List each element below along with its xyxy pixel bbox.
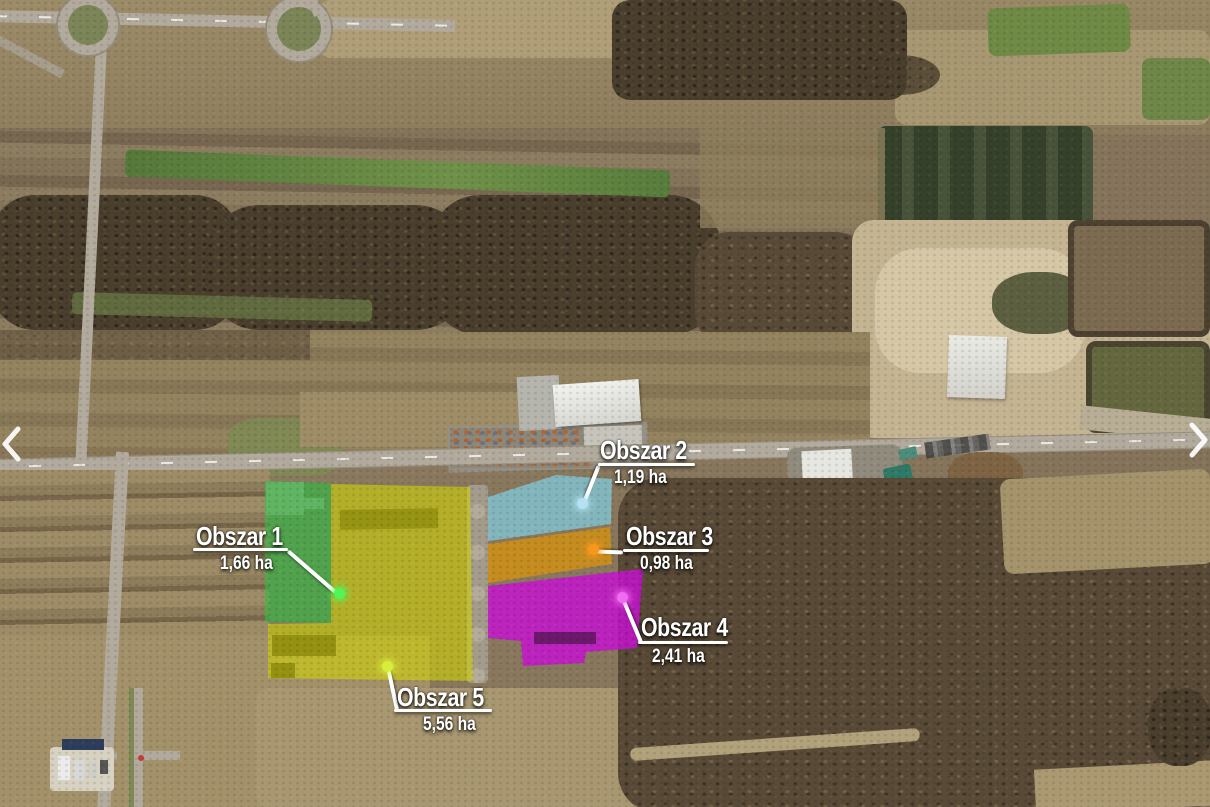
building: [62, 739, 104, 750]
label-underline: [598, 463, 695, 466]
terrain-scrub: [0, 330, 310, 360]
label-underline: [623, 549, 709, 552]
parked-truck: [58, 756, 70, 780]
label-underline: [193, 548, 288, 551]
terrain-forest: [860, 55, 940, 95]
area-size: 0,98 ha: [640, 553, 693, 575]
area-size: 5,56 ha: [423, 714, 476, 736]
terrain-detail: [138, 755, 144, 761]
terrain-scrub: [695, 232, 870, 347]
area-marker-dot: [334, 588, 345, 599]
roundabout: [267, 0, 331, 61]
area-size: 2,41 ha: [652, 646, 705, 668]
hedge-row: [534, 632, 596, 644]
next-arrow-button[interactable]: [1188, 422, 1210, 461]
area-marker-dot: [382, 661, 393, 672]
area-marker-dot: [588, 544, 599, 555]
quarry-building: [947, 335, 1007, 399]
crossing-road: [142, 751, 180, 760]
terrain-field: [1034, 760, 1210, 807]
area-size: 1,19 ha: [614, 467, 667, 489]
industrial-equipment: [898, 446, 918, 461]
landfill-cell: [1068, 220, 1210, 337]
aerial-map: Obszar 1 1,66 ha Obszar 2 1,19 ha Obszar…: [0, 0, 1210, 807]
field-road: [467, 485, 488, 683]
area-title: Obszar 2: [600, 435, 687, 466]
area-title: Obszar 3: [626, 521, 713, 552]
hedge-row: [271, 663, 295, 678]
terrain-forest: [1148, 688, 1210, 766]
area-marker-dot: [577, 498, 588, 509]
hedge-row: [272, 635, 336, 656]
hedge-row: [340, 508, 438, 530]
parked-truck: [74, 760, 84, 780]
side-road: [134, 688, 143, 807]
label-underline: [638, 641, 728, 644]
parked-truck: [88, 762, 97, 778]
parked-truck: [100, 760, 108, 774]
terrain-green-field: [987, 4, 1131, 57]
leader-line: [287, 549, 341, 597]
area-marker-dot: [617, 592, 628, 603]
terrain-field: [700, 128, 885, 228]
chevron-right-icon: [1188, 422, 1210, 458]
area-title: Obszar 4: [641, 612, 728, 643]
terrain-forest: [612, 0, 907, 100]
industrial-shed: [801, 449, 853, 482]
area-size: 1,66 ha: [220, 553, 273, 575]
driveway: [296, 498, 324, 509]
chevron-left-icon: [0, 426, 22, 462]
label-underline: [394, 709, 492, 712]
terrain-field: [1000, 469, 1210, 575]
terrain-forest: [430, 195, 720, 335]
prev-arrow-button[interactable]: [0, 426, 22, 465]
terrain-green-field: [1142, 58, 1210, 120]
industrial-hall: [553, 379, 642, 427]
